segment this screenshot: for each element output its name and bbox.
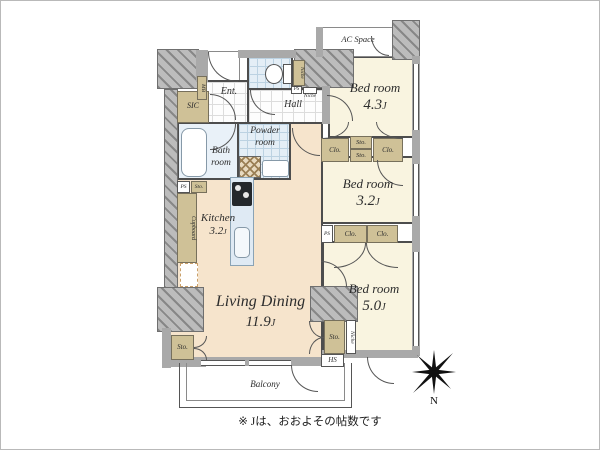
niche-recess-hall <box>303 87 317 94</box>
room-size: 3.2J <box>356 193 379 209</box>
closet-box: Clo. <box>367 225 398 243</box>
pipe-space-box: PS <box>321 225 333 243</box>
compass-rose: N <box>408 346 460 406</box>
stove-fixture <box>232 182 252 206</box>
niche-box-living: Niche <box>346 320 356 354</box>
room-name: Bed room <box>350 80 400 95</box>
toilet-fixture <box>265 64 283 84</box>
refrigerator-space-dashed <box>180 263 198 287</box>
column-hatch-top-left <box>157 49 199 89</box>
room-name: Bed room <box>343 176 393 191</box>
closet-box: Clo. <box>373 138 403 162</box>
burner-icon <box>235 185 241 191</box>
room-bedroom-4-3-label: Bed room 4.3J <box>333 80 417 114</box>
room-sic-label: SIC <box>179 101 207 111</box>
washbasin-fixture <box>262 160 289 177</box>
room-size: 5.0J <box>362 298 385 314</box>
floor-plan: SIC MB Niche PS Niche Clo. Sto. Sto. Clo… <box>0 0 600 450</box>
window-bed32 <box>413 164 419 216</box>
room-balcony-label: Balcony <box>235 379 295 390</box>
niche-box-toilet: Niche <box>293 60 305 86</box>
room-size: 11.9J <box>246 314 276 330</box>
wall-top-b <box>238 50 296 58</box>
room-bedroom-3-2-label: Bed room 3.2J <box>326 176 410 210</box>
washing-machine-pan <box>239 156 261 178</box>
door-arc-exterior <box>367 357 394 384</box>
toilet-tank <box>283 64 292 84</box>
room-living-dining-label: Living Dining 11.9J <box>188 292 333 331</box>
room-bedroom-5-0-label: Bed room 5.0J <box>332 281 416 315</box>
column-hatch-top-right <box>392 20 420 60</box>
room-kitchen-label: Kitchen 3.2J <box>192 212 244 239</box>
room-ac-space-label: AC Space <box>325 34 391 44</box>
compass-n-label: N <box>430 395 438 406</box>
room-powder-label: Powder room <box>243 126 287 149</box>
closet-box: Clo. <box>321 138 349 162</box>
wall-ac-left <box>316 27 323 57</box>
room-name: Living Dining <box>216 293 305 310</box>
storage-box: Sto. <box>350 149 372 162</box>
meter-box: MB <box>197 76 207 100</box>
room-bath-label: Bath room <box>203 146 239 169</box>
approx-note: ※ Jは、おおよその帖数です <box>180 413 440 429</box>
burner-icon <box>243 192 249 198</box>
wall-left <box>164 89 178 301</box>
room-size: 3.2J <box>209 225 226 237</box>
pipe-space-box-bath: PS <box>177 181 190 193</box>
room-hall-label: Hall <box>276 99 310 111</box>
room-size: 4.3J <box>363 97 386 113</box>
storage-box: Sto. <box>350 136 372 149</box>
room-name: Kitchen <box>201 212 235 224</box>
room-name: Bed room <box>349 281 399 296</box>
storage-box: Sto. <box>191 181 207 193</box>
closet-box: Clo. <box>334 225 367 243</box>
room-entrance-label: Ent. <box>213 86 245 98</box>
pipe-space-box-hall: PS <box>291 86 302 94</box>
storage-box: Sto. <box>171 335 194 360</box>
